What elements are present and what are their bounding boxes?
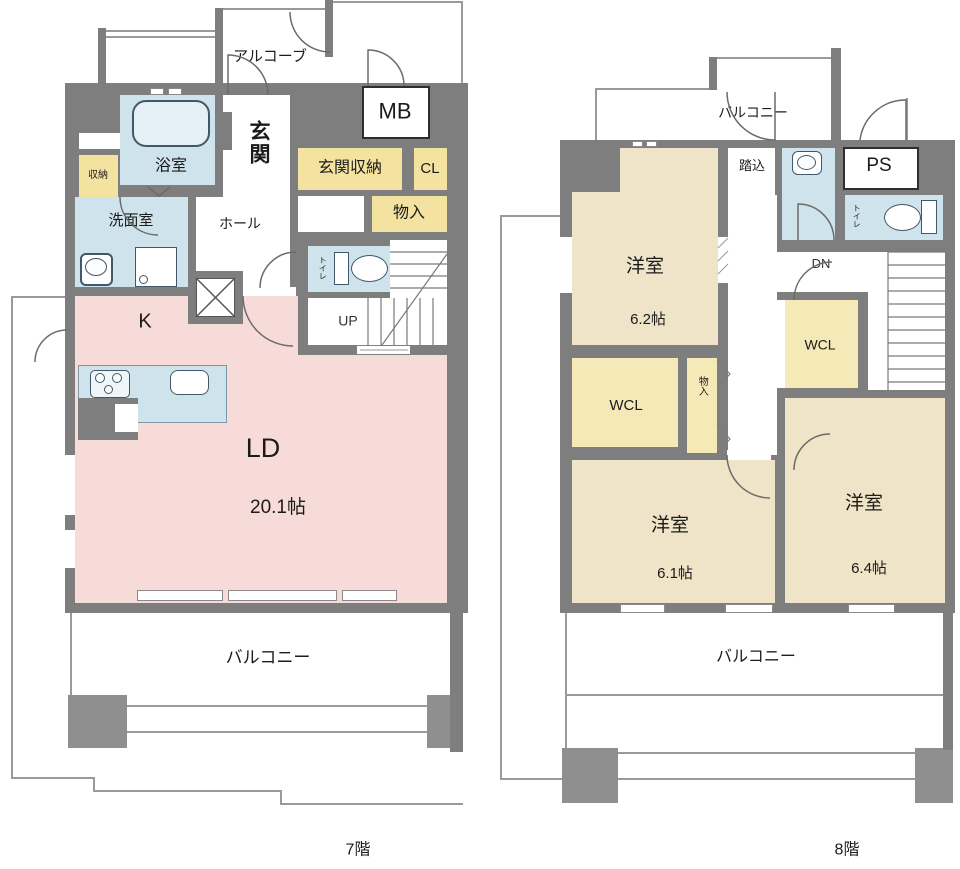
toilet-bowl — [884, 204, 921, 231]
stairs-up-label: UP — [338, 314, 357, 329]
toilet-tank — [334, 252, 349, 285]
wall-segment — [858, 300, 868, 390]
outline-line — [500, 215, 560, 217]
door-arc-alcove — [290, 12, 330, 52]
shelf-counter — [79, 133, 120, 149]
bathtub-icon — [132, 100, 210, 147]
room-label-cl: CL — [420, 161, 439, 177]
sliding-door-mark — [646, 141, 657, 147]
floorplan-canvas: アルコーブ 浴室 収納 洗面室 玄関 ホール MB 玄関収納 CL 物入 トイレ… — [0, 0, 960, 869]
corridor — [298, 196, 364, 232]
room-label-balcony-8f: バルコニー — [716, 650, 796, 667]
toilet-tank — [921, 200, 937, 234]
outline-line — [500, 778, 562, 780]
outline-line — [333, 1, 463, 3]
room-label-monoire: 物入 — [393, 206, 425, 223]
balcony-pillar — [562, 748, 618, 803]
wall-segment — [222, 112, 232, 150]
stair-flight-lower — [308, 298, 447, 345]
balcony-edge — [70, 613, 72, 695]
wall-segment — [943, 613, 953, 750]
outline-line — [93, 790, 282, 792]
room-size-bedroom1: 6.2帖 — [630, 312, 666, 328]
outline-line — [11, 296, 67, 298]
room-label-bedroom3: 洋室 — [845, 494, 883, 514]
wall-segment — [325, 0, 333, 57]
ldk-door-opening — [243, 287, 296, 296]
outline-line — [595, 88, 597, 140]
washbasin-bowl — [797, 155, 816, 170]
stove-burner — [95, 373, 105, 383]
room-label-ps: PS — [866, 156, 891, 176]
room-label-balcony-7f: バルコニー — [226, 649, 311, 667]
room-bedroom1 — [620, 148, 718, 192]
washing-machine-dial — [139, 275, 148, 284]
outline-line — [500, 215, 502, 780]
room-label-ld: LD — [246, 434, 281, 462]
door-arc-front-8f — [860, 100, 906, 140]
stair-window — [357, 346, 410, 354]
floor-label-7f: 7階 — [346, 843, 371, 860]
wall-segment — [831, 48, 841, 140]
window-line — [104, 36, 215, 38]
room-label-hall: ホール — [219, 217, 261, 232]
toilet-bowl — [351, 255, 388, 282]
hall-8f — [728, 195, 777, 455]
closet-door — [718, 237, 728, 283]
wall-segment — [777, 292, 868, 300]
wall-segment — [457, 83, 468, 613]
door-opening — [727, 450, 771, 460]
sink-icon — [170, 370, 209, 395]
outline-line — [461, 1, 463, 85]
wall-segment — [98, 28, 106, 85]
window — [620, 604, 665, 613]
outline-line — [11, 296, 13, 779]
room-size-ld: 20.1帖 — [250, 498, 306, 518]
balcony-railing — [618, 752, 915, 754]
balcony-line — [567, 694, 943, 696]
outline-line — [717, 57, 836, 59]
room-monoire-8f — [687, 358, 717, 453]
room-label-balcony-top-8f: バルコニー — [718, 106, 788, 121]
room-label-bedroom1: 洋室 — [626, 257, 664, 277]
wall-segment — [215, 8, 223, 85]
stove-burner — [104, 385, 113, 394]
room-label-genkan-storage: 玄関収納 — [318, 161, 382, 178]
room-label-alcove: アルコーブ — [233, 49, 307, 65]
window — [848, 604, 895, 613]
door-arc-porch — [368, 50, 404, 86]
sliding-door-mark — [632, 141, 643, 147]
room-label-toilet: トイレ — [318, 256, 326, 280]
balcony-edge — [565, 613, 567, 748]
window — [65, 455, 75, 515]
fridge-space — [115, 404, 138, 432]
balcony-pillar — [68, 695, 127, 748]
balcony-pillar — [915, 748, 953, 803]
window — [137, 590, 223, 601]
room-label-wcl-left: WCL — [609, 398, 642, 414]
room-ldk — [298, 355, 447, 603]
room-size-bedroom3: 6.4帖 — [851, 561, 887, 577]
balcony-railing — [618, 778, 915, 780]
washbasin-bowl — [85, 258, 107, 276]
window — [342, 590, 397, 601]
stove-burner — [112, 373, 122, 383]
faucet-marks — [168, 88, 182, 95]
room-label-mb: MB — [379, 99, 412, 122]
stair-flight-upper — [390, 240, 447, 298]
window-line — [104, 30, 215, 32]
room-label-bedroom2: 洋室 — [651, 516, 689, 536]
room-label-monoire-8f: 物入 — [696, 376, 707, 396]
outline-line — [11, 777, 95, 779]
room-size-bedroom2: 6.1帖 — [657, 566, 693, 582]
outline-line — [595, 88, 711, 90]
room-label-washroom: 洗面室 — [108, 213, 153, 229]
stairs-dn-label: DN — [812, 257, 831, 271]
duct-box — [196, 278, 235, 317]
outline-line — [222, 8, 332, 10]
room-label-storage: 収納 — [88, 171, 108, 182]
balcony-railing — [127, 705, 427, 707]
wall-segment — [709, 57, 717, 90]
room-label-fumikomi: 踏込 — [739, 159, 765, 173]
window — [560, 237, 572, 293]
window — [228, 590, 337, 601]
wall-segment — [777, 388, 868, 398]
outline-line — [280, 803, 463, 805]
outline-line — [906, 98, 908, 140]
balcony-railing — [127, 731, 427, 733]
window — [65, 530, 75, 568]
room-label-bathroom: 浴室 — [155, 159, 187, 176]
room-label-toilet-8f: トイレ — [852, 204, 860, 228]
wall-segment — [450, 613, 463, 752]
window — [725, 604, 773, 613]
floor-label-8f: 8階 — [835, 843, 860, 860]
faucet-marks — [150, 88, 164, 95]
room-label-kitchen: K — [138, 312, 151, 333]
door-arc-kitchen-ext — [35, 330, 67, 362]
room-label-genkan: 玄関 — [247, 120, 269, 166]
room-label-wcl-right: WCL — [804, 338, 835, 353]
